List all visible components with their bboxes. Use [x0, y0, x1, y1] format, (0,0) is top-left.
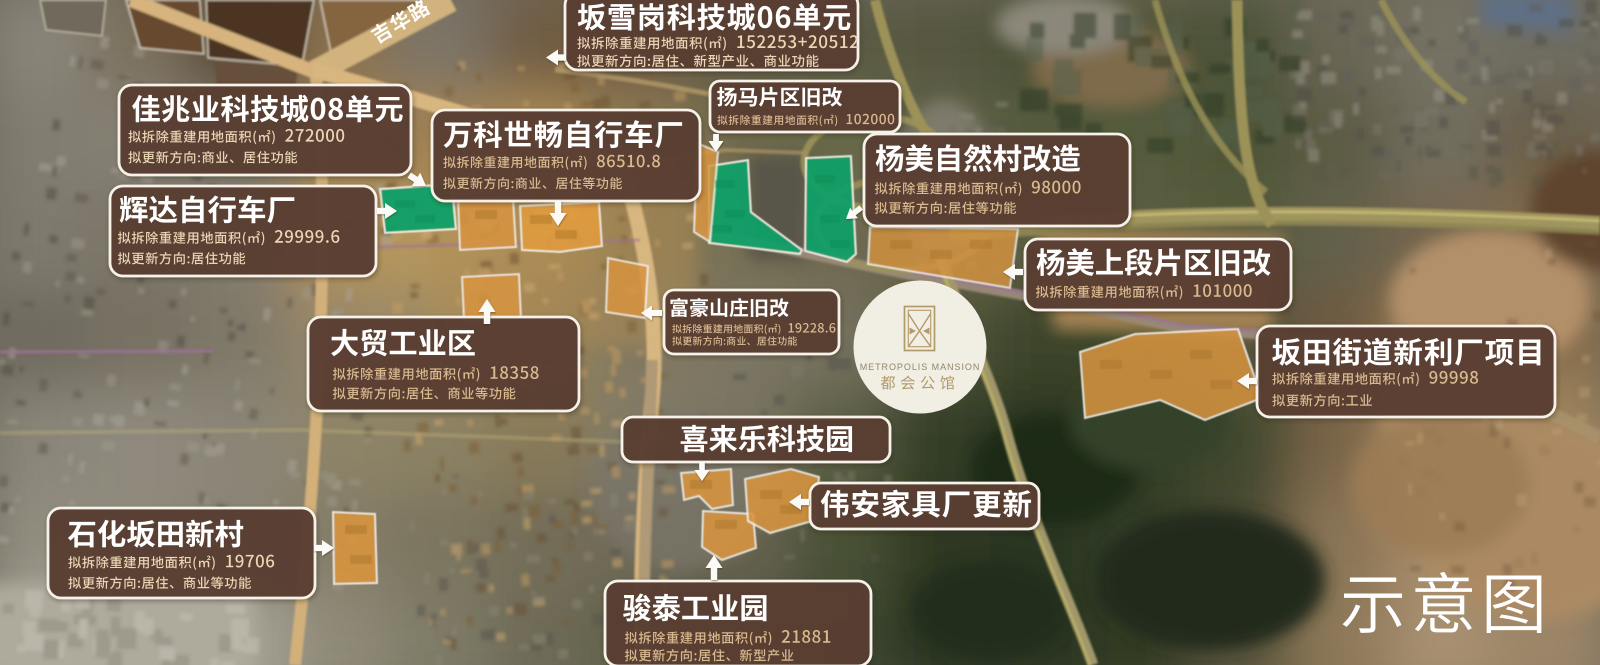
svg-text:METROPOLIS MANSION: METROPOLIS MANSION [860, 362, 981, 372]
